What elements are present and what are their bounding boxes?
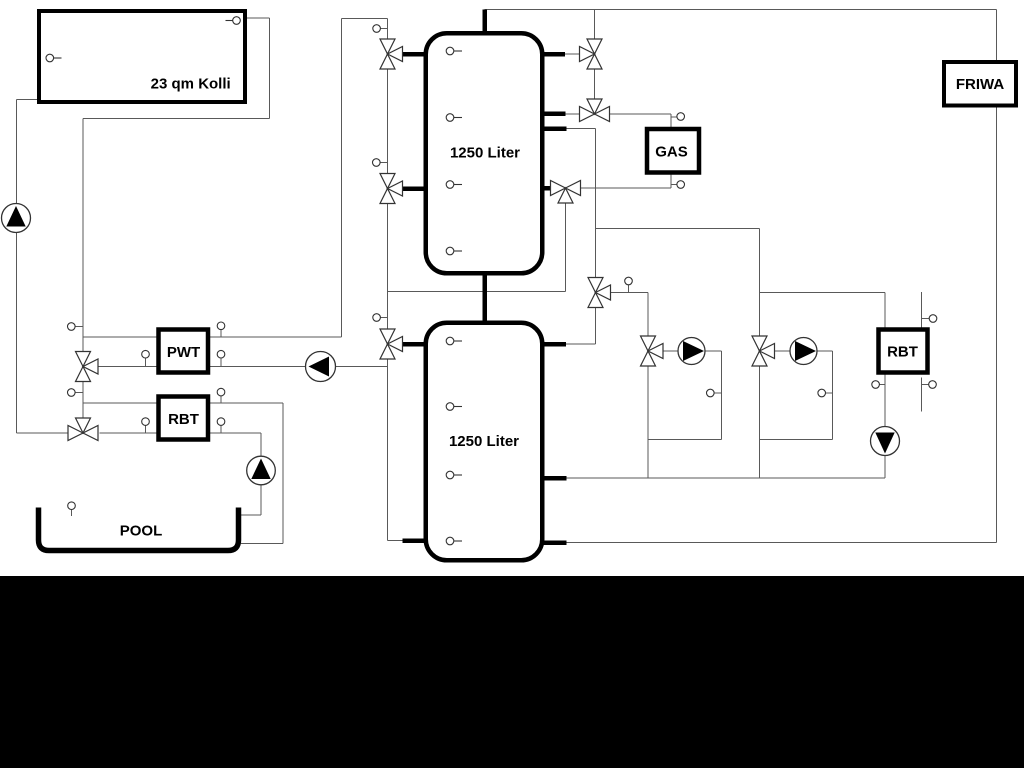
svg-text:1250 Liter: 1250 Liter (450, 145, 520, 162)
svg-text:23 qm Kolli: 23 qm Kolli (151, 76, 231, 93)
svg-text:POOL: POOL (120, 523, 163, 540)
svg-text:PWT: PWT (167, 344, 200, 361)
svg-text:RBT: RBT (168, 411, 199, 428)
svg-text:RBT: RBT (887, 344, 918, 361)
svg-text:1250 Liter: 1250 Liter (449, 433, 519, 450)
svg-text:FRIWA: FRIWA (956, 76, 1004, 93)
svg-text:GAS: GAS (655, 144, 688, 161)
